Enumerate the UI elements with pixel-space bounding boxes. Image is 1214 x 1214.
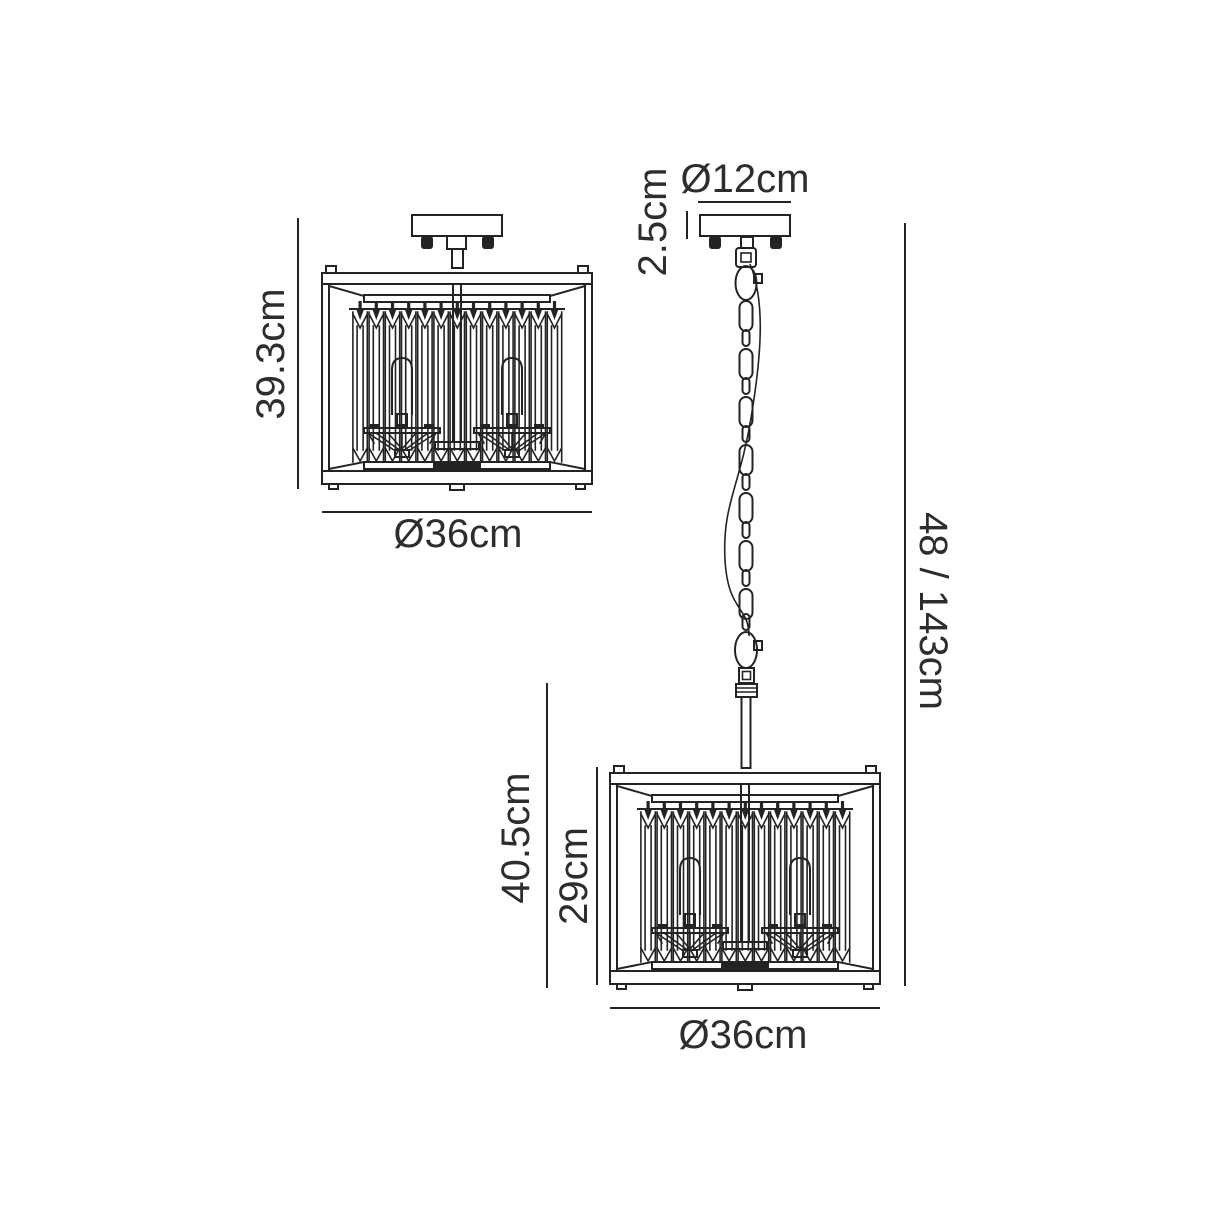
semi-flush-shade — [322, 266, 592, 490]
diagram-canvas: 39.3cm Ø36cm — [0, 0, 1214, 1214]
canopy-screw — [709, 236, 721, 249]
pendant-diameter-label: Ø36cm — [679, 1013, 808, 1057]
stem-rod — [452, 249, 463, 268]
canopy-height-label: 2.5cm — [631, 168, 675, 277]
drop-height-label: 48 / 143cm — [911, 512, 955, 710]
semi-flush-height-label: 39.3cm — [249, 288, 293, 419]
chain-assembly — [725, 237, 762, 768]
canopy-diameter-label: Ø12cm — [681, 157, 810, 201]
stem-rod — [742, 697, 751, 768]
pendant-shade-height-label: 29cm — [552, 827, 596, 925]
pendant-canopy — [700, 215, 790, 249]
canopy-screw — [421, 236, 433, 249]
dimension-diagram: 39.3cm Ø36cm — [0, 0, 1214, 1214]
canopy-screw — [482, 236, 494, 249]
canopy-screw — [770, 236, 782, 249]
pendant-body-height-label: 40.5cm — [494, 772, 538, 903]
pendant-shade — [610, 766, 880, 990]
semi-flush-view: 39.3cm Ø36cm — [249, 215, 592, 556]
semi-flush-diameter-label: Ø36cm — [394, 512, 523, 556]
semi-flush-canopy — [412, 215, 502, 268]
